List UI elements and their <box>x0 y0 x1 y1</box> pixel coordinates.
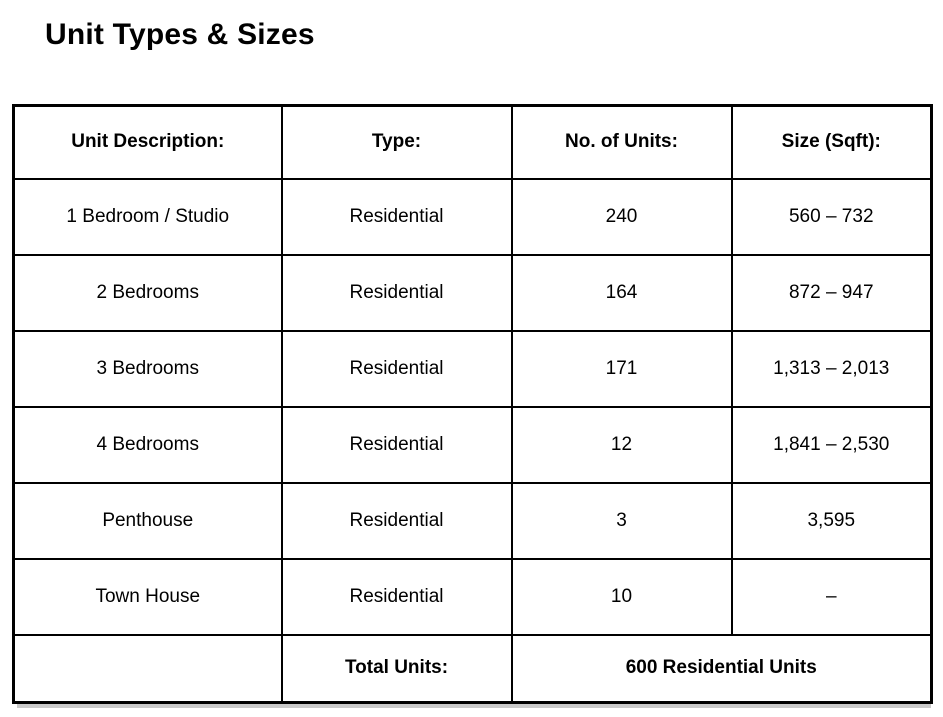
cell-type: Residential <box>282 331 512 407</box>
table-row: 4 Bedrooms Residential 12 1,841 – 2,530 <box>14 407 932 483</box>
cell-size: 1,313 – 2,013 <box>732 331 932 407</box>
table-row: Penthouse Residential 3 3,595 <box>14 483 932 559</box>
column-header-type: Type: <box>282 106 512 179</box>
column-header-size-sqft: Size (Sqft): <box>732 106 932 179</box>
page: Unit Types & Sizes Unit Description: Typ… <box>0 0 943 717</box>
cell-size: 3,595 <box>732 483 932 559</box>
footer-total-units-label: Total Units: <box>282 635 512 703</box>
column-header-unit-description: Unit Description: <box>14 106 282 179</box>
cell-description: 1 Bedroom / Studio <box>14 179 282 255</box>
cell-size: – <box>732 559 932 635</box>
table-row: 3 Bedrooms Residential 171 1,313 – 2,013 <box>14 331 932 407</box>
cell-size: 560 – 732 <box>732 179 932 255</box>
page-title: Unit Types & Sizes <box>45 18 315 52</box>
cell-type: Residential <box>282 179 512 255</box>
table-header: Unit Description: Type: No. of Units: Si… <box>14 106 932 179</box>
cell-description: 2 Bedrooms <box>14 255 282 331</box>
cell-type: Residential <box>282 255 512 331</box>
unit-types-table: Unit Description: Type: No. of Units: Si… <box>12 104 933 704</box>
cell-units: 240 <box>512 179 732 255</box>
table-footer: Total Units: 600 Residential Units <box>14 635 932 703</box>
cell-units: 171 <box>512 331 732 407</box>
cell-description: Penthouse <box>14 483 282 559</box>
cell-units: 164 <box>512 255 732 331</box>
footer-row: Total Units: 600 Residential Units <box>14 635 932 703</box>
footer-empty-cell <box>14 635 282 703</box>
cell-description: Town House <box>14 559 282 635</box>
cell-units: 3 <box>512 483 732 559</box>
column-header-no-of-units: No. of Units: <box>512 106 732 179</box>
cell-type: Residential <box>282 483 512 559</box>
cell-description: 3 Bedrooms <box>14 331 282 407</box>
table-row: 2 Bedrooms Residential 164 872 – 947 <box>14 255 932 331</box>
unit-types-table-container: Unit Description: Type: No. of Units: Si… <box>12 104 930 704</box>
cell-type: Residential <box>282 559 512 635</box>
table-row: Town House Residential 10 – <box>14 559 932 635</box>
cell-size: 1,841 – 2,530 <box>732 407 932 483</box>
cell-type: Residential <box>282 407 512 483</box>
table-row: 1 Bedroom / Studio Residential 240 560 –… <box>14 179 932 255</box>
cell-size: 872 – 947 <box>732 255 932 331</box>
table-body: 1 Bedroom / Studio Residential 240 560 –… <box>14 179 932 635</box>
footer-total-units-value: 600 Residential Units <box>512 635 932 703</box>
header-row: Unit Description: Type: No. of Units: Si… <box>14 106 932 179</box>
cell-units: 10 <box>512 559 732 635</box>
cell-description: 4 Bedrooms <box>14 407 282 483</box>
cell-units: 12 <box>512 407 732 483</box>
